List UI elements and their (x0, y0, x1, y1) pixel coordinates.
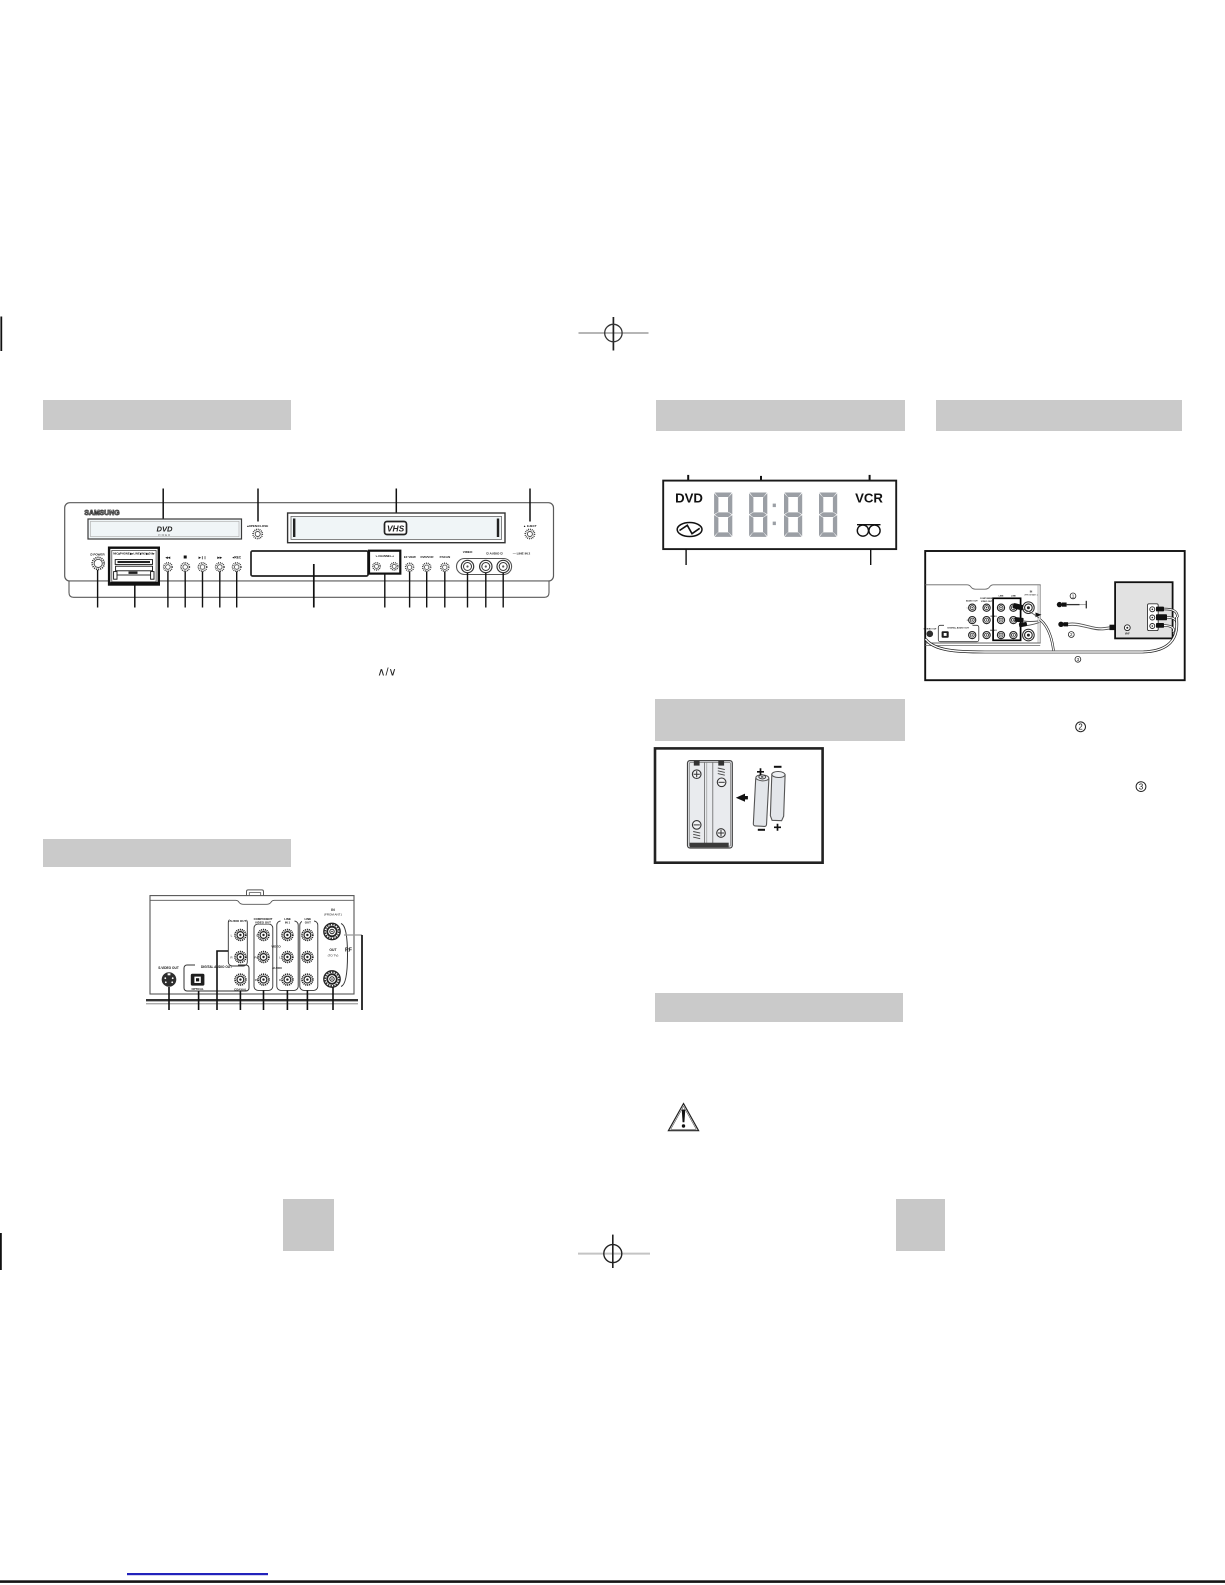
svg-text:∧/∨: ∧/∨ (377, 667, 396, 679)
svg-text:P.SCAN: P.SCAN (440, 555, 451, 559)
svg-text:VCR: VCR (855, 491, 883, 506)
svg-text:2: 2 (1078, 723, 1082, 732)
svg-text:IN 1: IN 1 (285, 921, 291, 925)
svg-text:EZ VIEW: EZ VIEW (404, 555, 416, 559)
svg-text:IN: IN (331, 908, 335, 912)
svg-text:DVD: DVD (156, 525, 173, 534)
svg-text:VIDEO: VIDEO (463, 550, 473, 554)
svg-text:OPTICAL: OPTICAL (191, 987, 204, 991)
svg-text:⏻ AUDIO ⏻: ⏻ AUDIO ⏻ (486, 552, 503, 556)
svg-text:LINE: LINE (1011, 596, 1016, 598)
svg-text:DVD/VCR: DVD/VCR (420, 555, 434, 559)
svg-text:— LINE IN 2: — LINE IN 2 (513, 552, 531, 556)
svg-text:OUT: OUT (329, 948, 337, 952)
svg-text:VHS: VHS (387, 524, 405, 534)
svg-text:DVD: DVD (675, 491, 703, 506)
svg-text:3: 3 (1139, 782, 1143, 791)
svg-text:▴OPEN/CLOSE: ▴OPEN/CLOSE (246, 524, 268, 528)
svg-text:VIDEO OUT: VIDEO OUT (981, 601, 993, 603)
svg-text:S.VIDEO OUT: S.VIDEO OUT (158, 966, 179, 970)
svg-text:LINE: LINE (999, 596, 1004, 598)
svg-text:DIGITAL AUDIO OUT: DIGITAL AUDIO OUT (948, 626, 970, 629)
svg-text:VIDEO: VIDEO (158, 533, 171, 537)
svg-text:(FROM ANT.): (FROM ANT.) (1024, 593, 1037, 596)
svg-text:●REC: ●REC (232, 556, 241, 560)
svg-text:S-VIDEO OUT: S-VIDEO OUT (923, 629, 937, 631)
svg-text:▲ EJECT: ▲ EJECT (523, 524, 537, 528)
svg-text:▶❙❙: ▶❙❙ (198, 556, 207, 560)
svg-text:(FROM ANT.): (FROM ANT.) (324, 913, 342, 917)
svg-text:VHF: VHF (1125, 633, 1130, 636)
svg-text:∨-CHANNEL-∧: ∨-CHANNEL-∧ (375, 554, 394, 558)
svg-text:OUT: OUT (305, 921, 311, 925)
svg-text:2: 2 (1070, 632, 1073, 637)
svg-text:▶▶: ▶▶ (216, 556, 222, 560)
svg-text:3: 3 (1077, 657, 1080, 662)
svg-text:RF: RF (345, 948, 352, 954)
svg-text:MIC▮PHONE▮▶LINE▮IN2▮▮DV▶: MIC▮PHONE▮▶LINE▮IN2▮▮DV▶ (113, 552, 155, 556)
svg-text:⏻ POWER: ⏻ POWER (90, 552, 105, 556)
svg-text:IN: IN (1030, 590, 1033, 593)
svg-text:(TO TV): (TO TV) (328, 954, 339, 958)
svg-text:VIDEO OUT: VIDEO OUT (255, 921, 271, 925)
svg-text:VIDEO: VIDEO (271, 945, 281, 949)
svg-text:AUDIO OUT: AUDIO OUT (229, 919, 246, 923)
svg-text:SAMSUNG: SAMSUNG (84, 510, 119, 517)
svg-text:AUDIO OUT: AUDIO OUT (966, 600, 978, 603)
svg-text:AUDIO: AUDIO (272, 966, 282, 970)
svg-text:◀◀: ◀◀ (164, 556, 170, 560)
svg-text:R: R (279, 978, 281, 982)
svg-text:1: 1 (1072, 594, 1075, 599)
